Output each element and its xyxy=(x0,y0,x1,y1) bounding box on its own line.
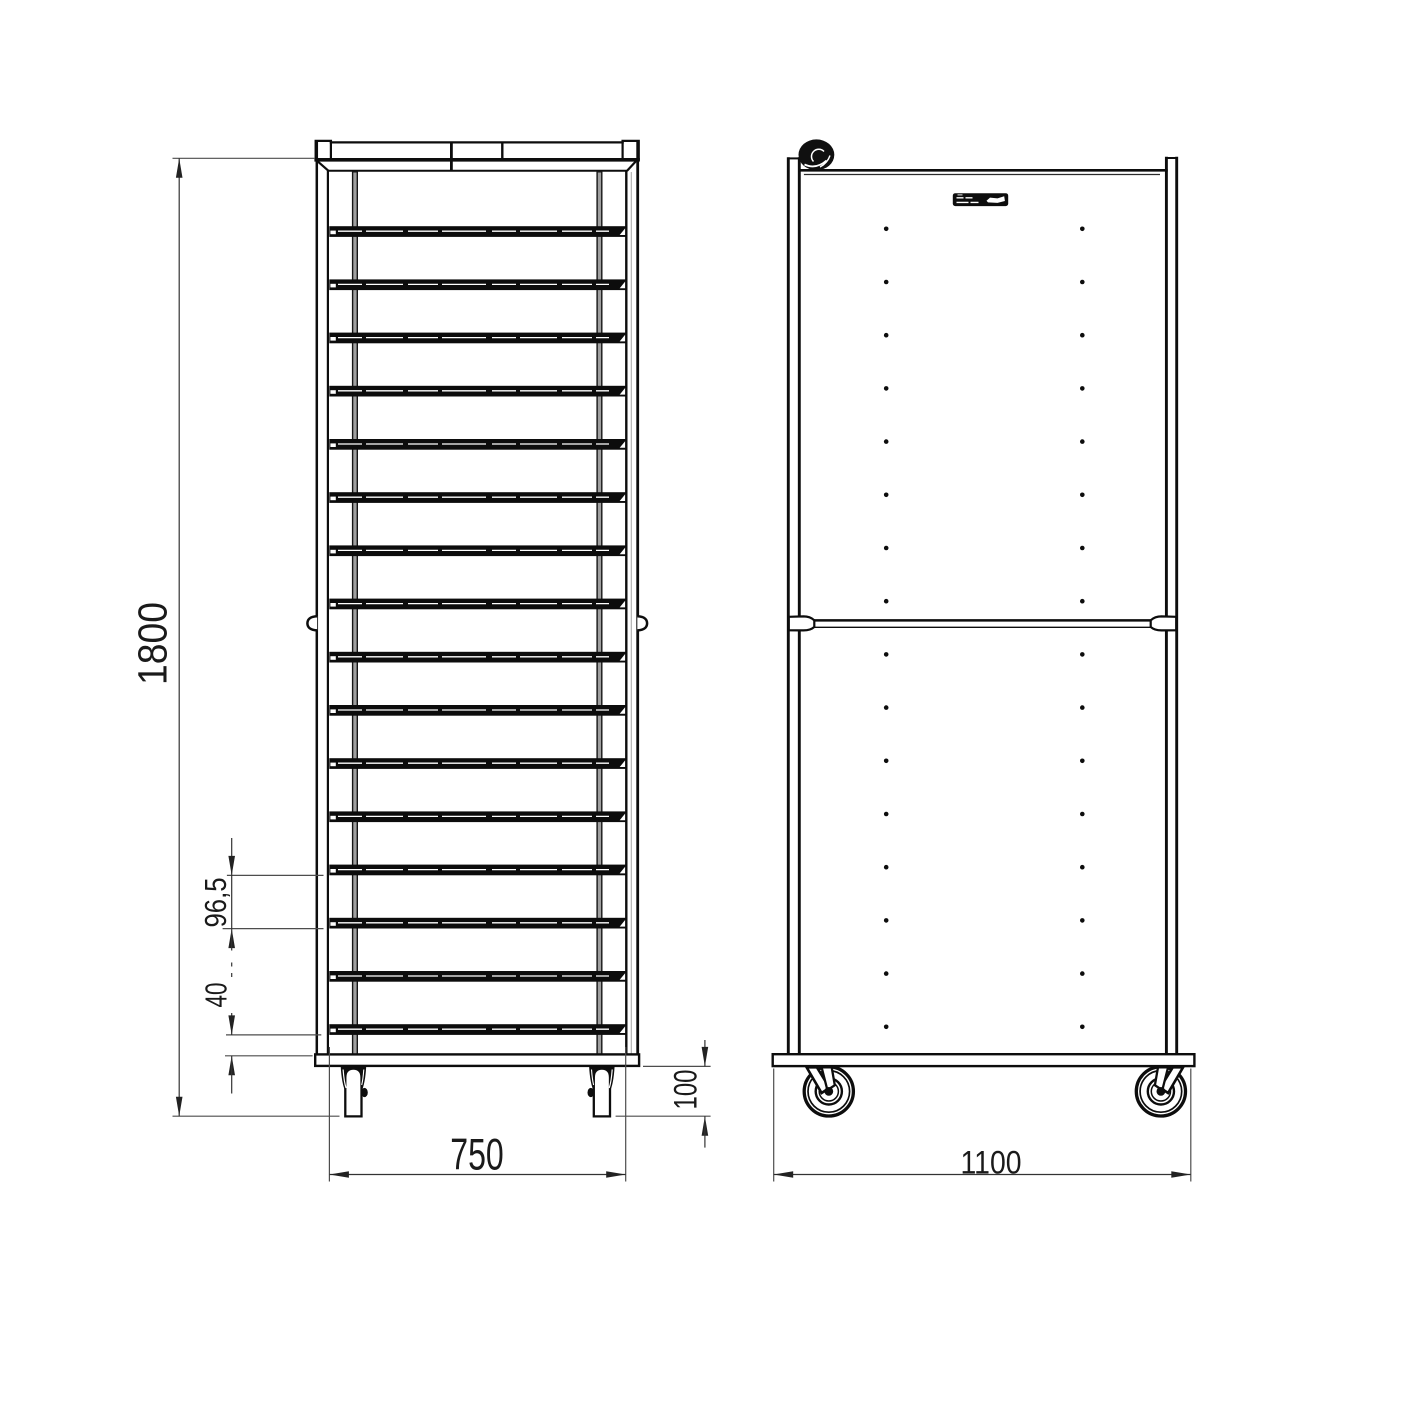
svg-text:1100: 1100 xyxy=(961,1145,1022,1181)
svg-text:96,5: 96,5 xyxy=(200,878,233,928)
svg-text:750: 750 xyxy=(450,1131,504,1180)
svg-text:40: 40 xyxy=(200,983,233,1008)
svg-text:100: 100 xyxy=(668,1070,704,1110)
svg-text:1800: 1800 xyxy=(130,602,176,685)
